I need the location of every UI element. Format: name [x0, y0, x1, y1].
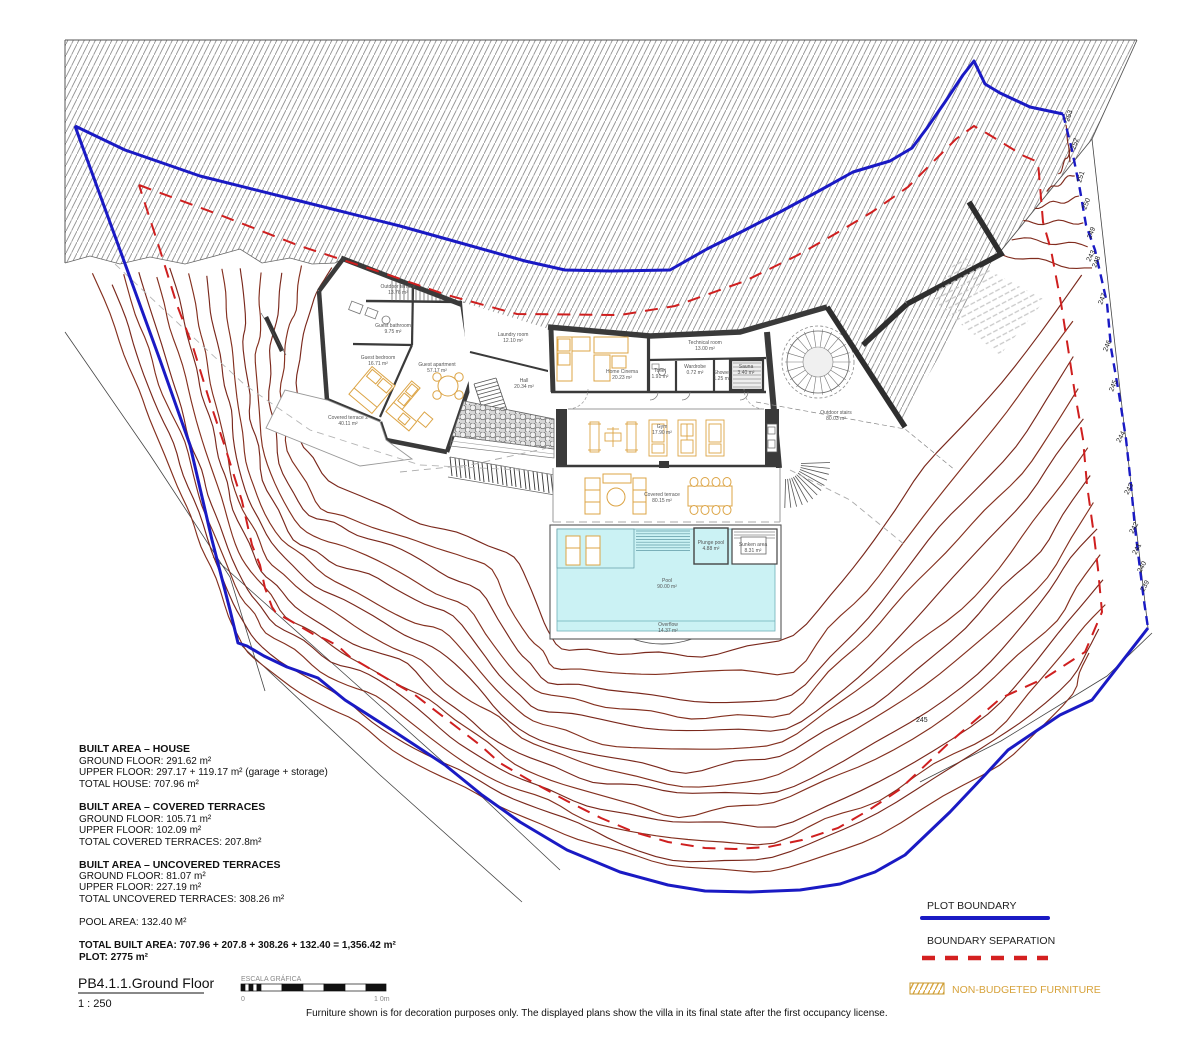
svg-text:57.17 m²: 57.17 m²	[427, 368, 447, 374]
svg-text:BOUNDARY SEPARATION: BOUNDARY SEPARATION	[927, 935, 1055, 947]
svg-text:245: 245	[916, 717, 928, 724]
svg-text:1.25 m²: 1.25 m²	[714, 376, 731, 382]
svg-text:UPPER FLOOR: 227.19 m²: UPPER FLOOR: 227.19 m²	[79, 882, 202, 893]
svg-text:0.72 m²: 0.72 m²	[687, 370, 704, 376]
svg-text:14.37 m²: 14.37 m²	[658, 628, 678, 634]
svg-text:NON-BUDGETED FURNITURE: NON-BUDGETED FURNITURE	[952, 984, 1101, 996]
svg-text:40.11 m²: 40.11 m²	[338, 421, 358, 427]
svg-text:1.91 m²: 1.91 m²	[652, 374, 669, 380]
svg-text:90.00 m²: 90.00 m²	[657, 584, 677, 590]
svg-text:BUILT AREA – HOUSE: BUILT AREA – HOUSE	[79, 743, 190, 755]
svg-text:12.10 m²: 12.10 m²	[503, 338, 523, 344]
svg-text:3.40 m²: 3.40 m²	[738, 370, 755, 376]
svg-text:9.75 m²: 9.75 m²	[385, 329, 402, 335]
svg-text:1 0m: 1 0m	[374, 996, 390, 1003]
svg-text:TOTAL HOUSE: 707.96 m²: TOTAL HOUSE: 707.96 m²	[79, 779, 200, 790]
svg-text:ESCALA GRÁFICA: ESCALA GRÁFICA	[241, 974, 302, 983]
svg-text:1 : 250: 1 : 250	[78, 998, 112, 1010]
svg-text:GROUND FLOOR: 291.62 m²: GROUND FLOOR: 291.62 m²	[79, 756, 212, 767]
svg-text:TOTAL COVERED TERRACES: 207.8m: TOTAL COVERED TERRACES: 207.8m²	[79, 837, 262, 848]
svg-text:UPPER FLOOR: 297.17 + 119.17 m: UPPER FLOOR: 297.17 + 119.17 m² (garage …	[79, 767, 328, 778]
svg-text:80.03 m²: 80.03 m²	[826, 416, 846, 422]
svg-text:GROUND FLOOR: 81.07 m²: GROUND FLOOR: 81.07 m²	[79, 871, 206, 882]
svg-text:16.71 m²: 16.71 m²	[368, 361, 388, 367]
svg-text:Furniture shown is for decorat: Furniture shown is for decoration purpos…	[306, 1008, 888, 1019]
svg-text:80.15 m²: 80.15 m²	[652, 498, 672, 504]
svg-text:13.76 m²: 13.76 m²	[388, 290, 408, 296]
svg-text:BUILT AREA – COVERED TERRACES: BUILT AREA – COVERED TERRACES	[79, 801, 265, 813]
svg-text:PLOT BOUNDARY: PLOT BOUNDARY	[927, 900, 1016, 912]
svg-text:20.34 m²: 20.34 m²	[514, 384, 534, 390]
svg-text:8.31 m²: 8.31 m²	[745, 548, 762, 554]
svg-text:PLOT: 2775 m²: PLOT: 2775 m²	[79, 952, 149, 963]
svg-text:13.00 m²: 13.00 m²	[695, 346, 715, 352]
svg-text:BUILT AREA – UNCOVERED TERRACE: BUILT AREA – UNCOVERED TERRACES	[79, 859, 280, 871]
svg-text:POOL AREA: 132.40 M²: POOL AREA: 132.40 M²	[79, 917, 187, 928]
svg-text:TOTAL UNCOVERED TERRACES: 308.: TOTAL UNCOVERED TERRACES: 308.26 m²	[79, 894, 285, 905]
svg-text:TOTAL BUILT AREA: 707.96 + 207: TOTAL BUILT AREA: 707.96 + 207.8 + 308.2…	[79, 940, 397, 951]
svg-text:UPPER FLOOR: 102.09 m²: UPPER FLOOR: 102.09 m²	[79, 825, 202, 836]
svg-text:17.90 m²: 17.90 m²	[652, 430, 672, 436]
svg-text:PB4.1.1.Ground Floor: PB4.1.1.Ground Floor	[78, 975, 215, 991]
svg-text:GROUND FLOOR: 105.71 m²: GROUND FLOOR: 105.71 m²	[79, 814, 212, 825]
svg-text:20.23 m²: 20.23 m²	[612, 375, 632, 381]
svg-text:4.88 m²: 4.88 m²	[703, 546, 720, 552]
svg-text:0: 0	[241, 996, 245, 1003]
